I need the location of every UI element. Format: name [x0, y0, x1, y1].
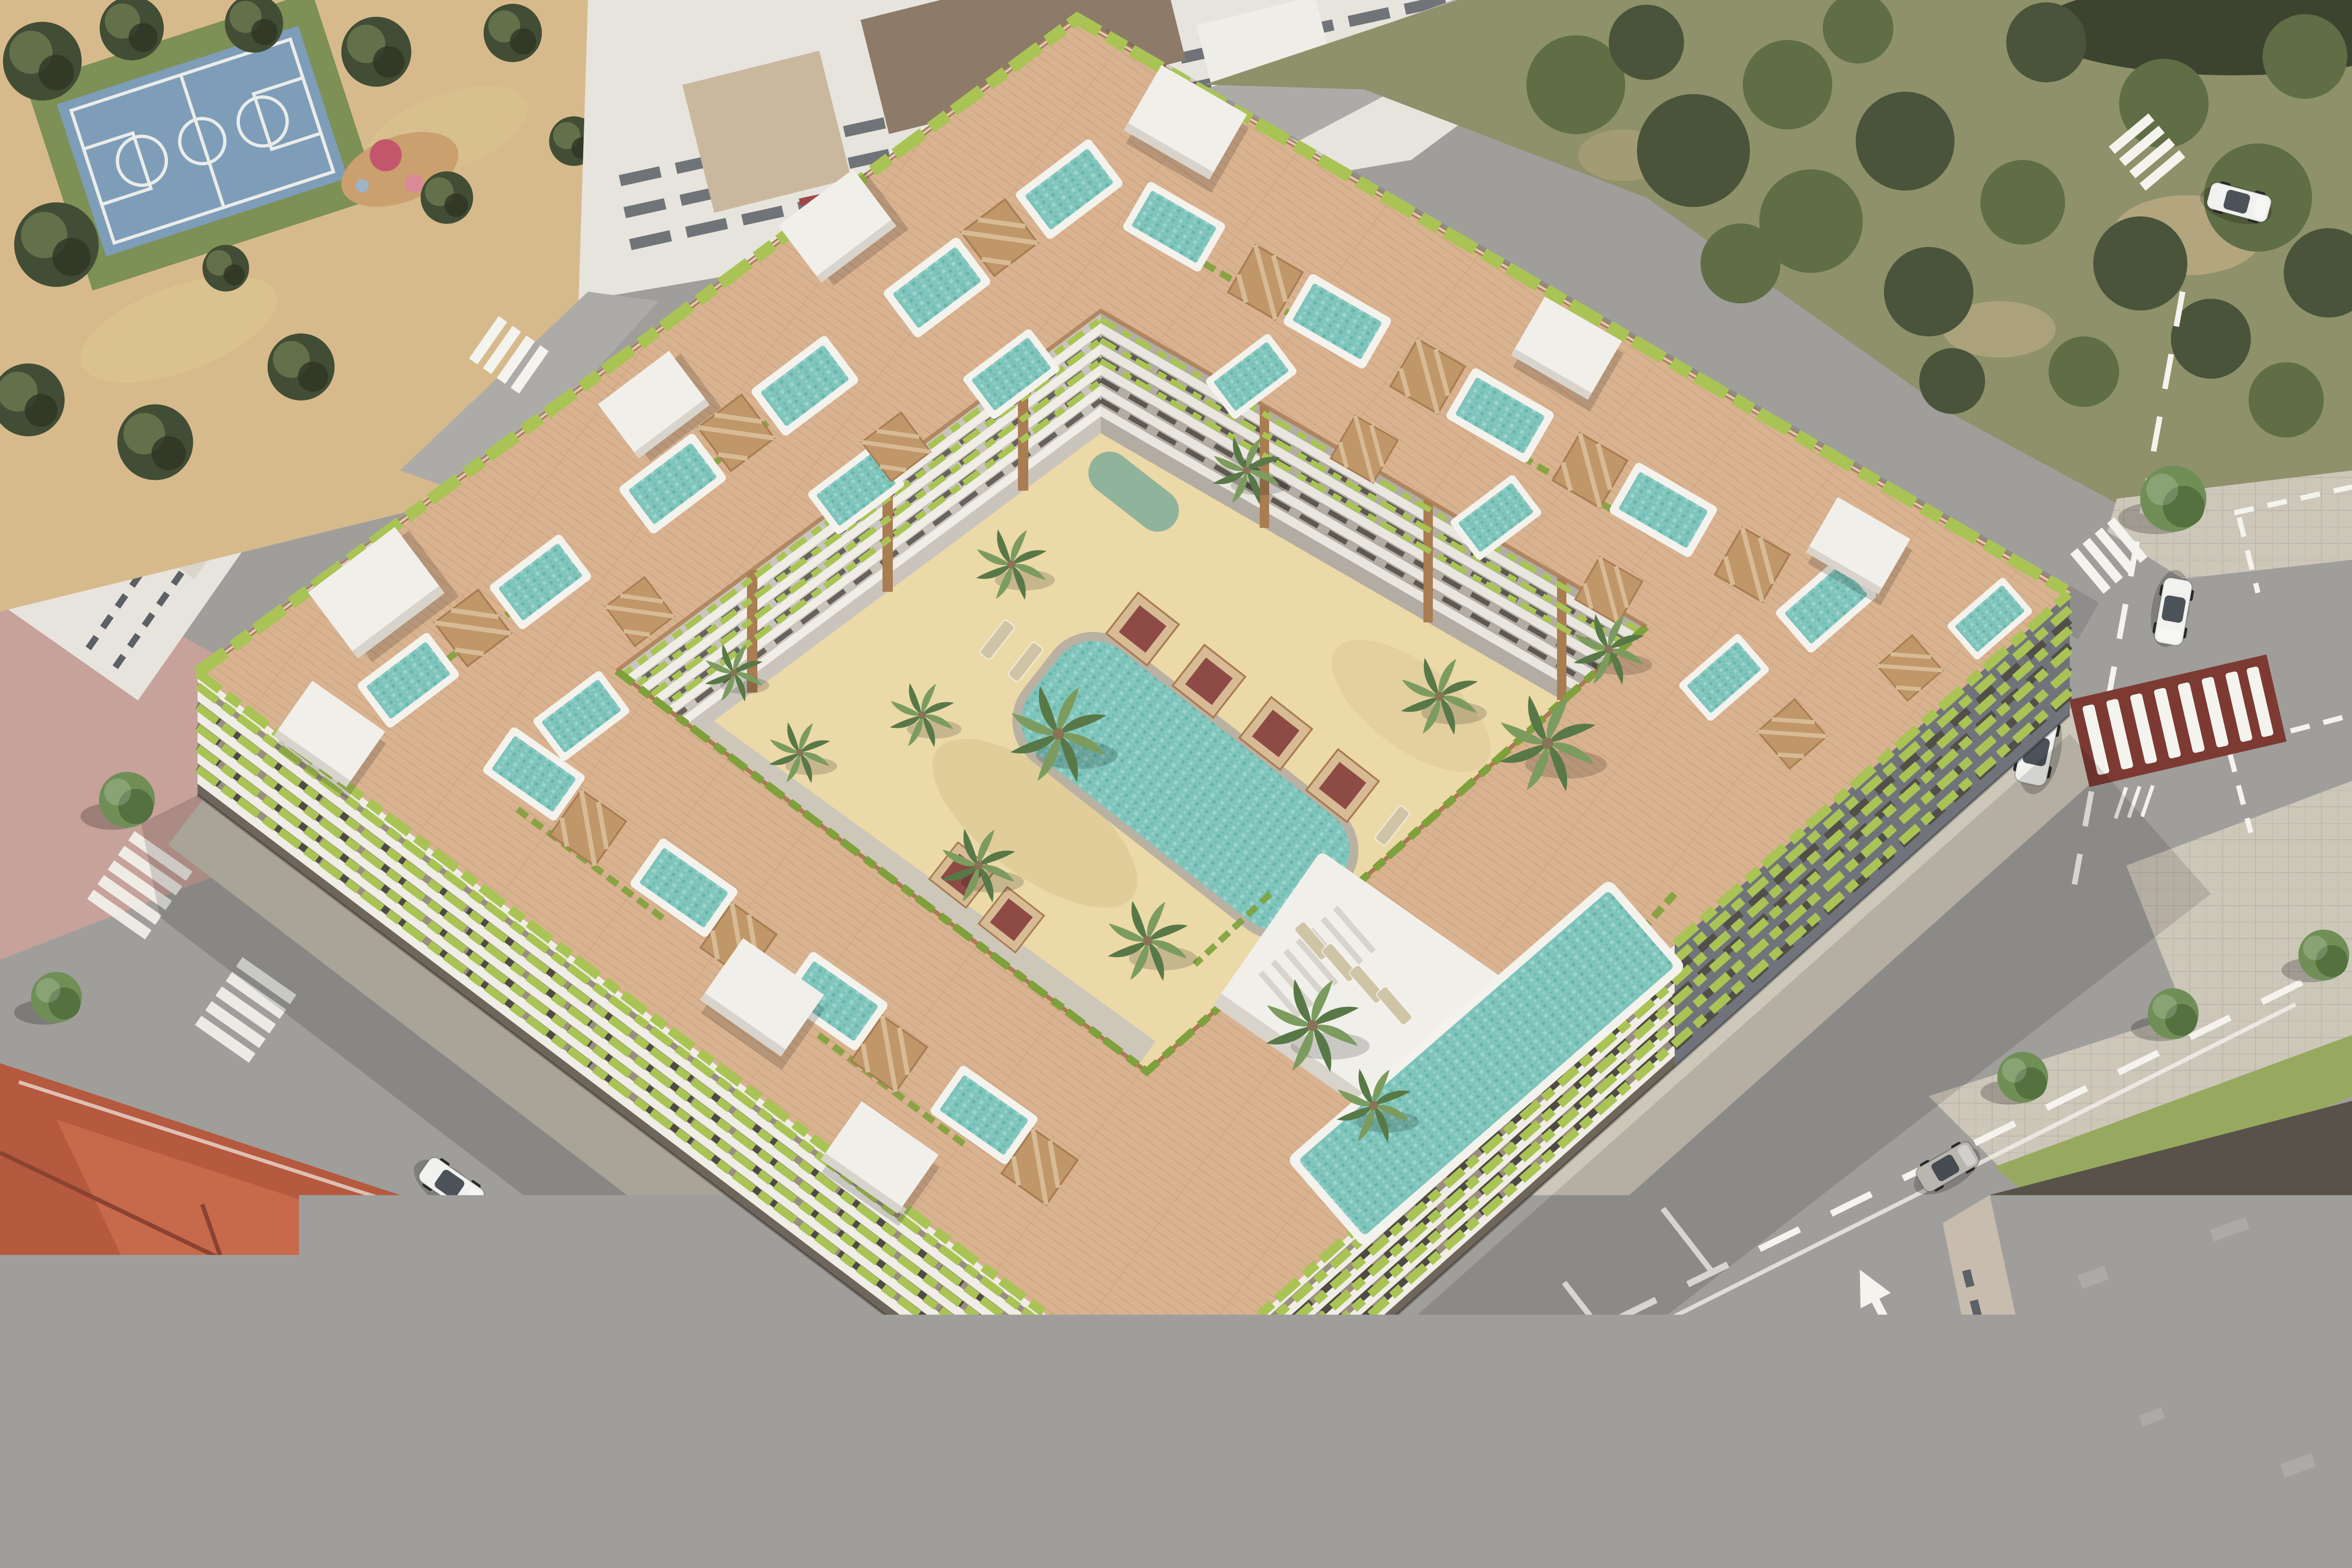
aerial-render: Aerial 3D render of a new square apartme…	[0, 0, 2352, 1568]
